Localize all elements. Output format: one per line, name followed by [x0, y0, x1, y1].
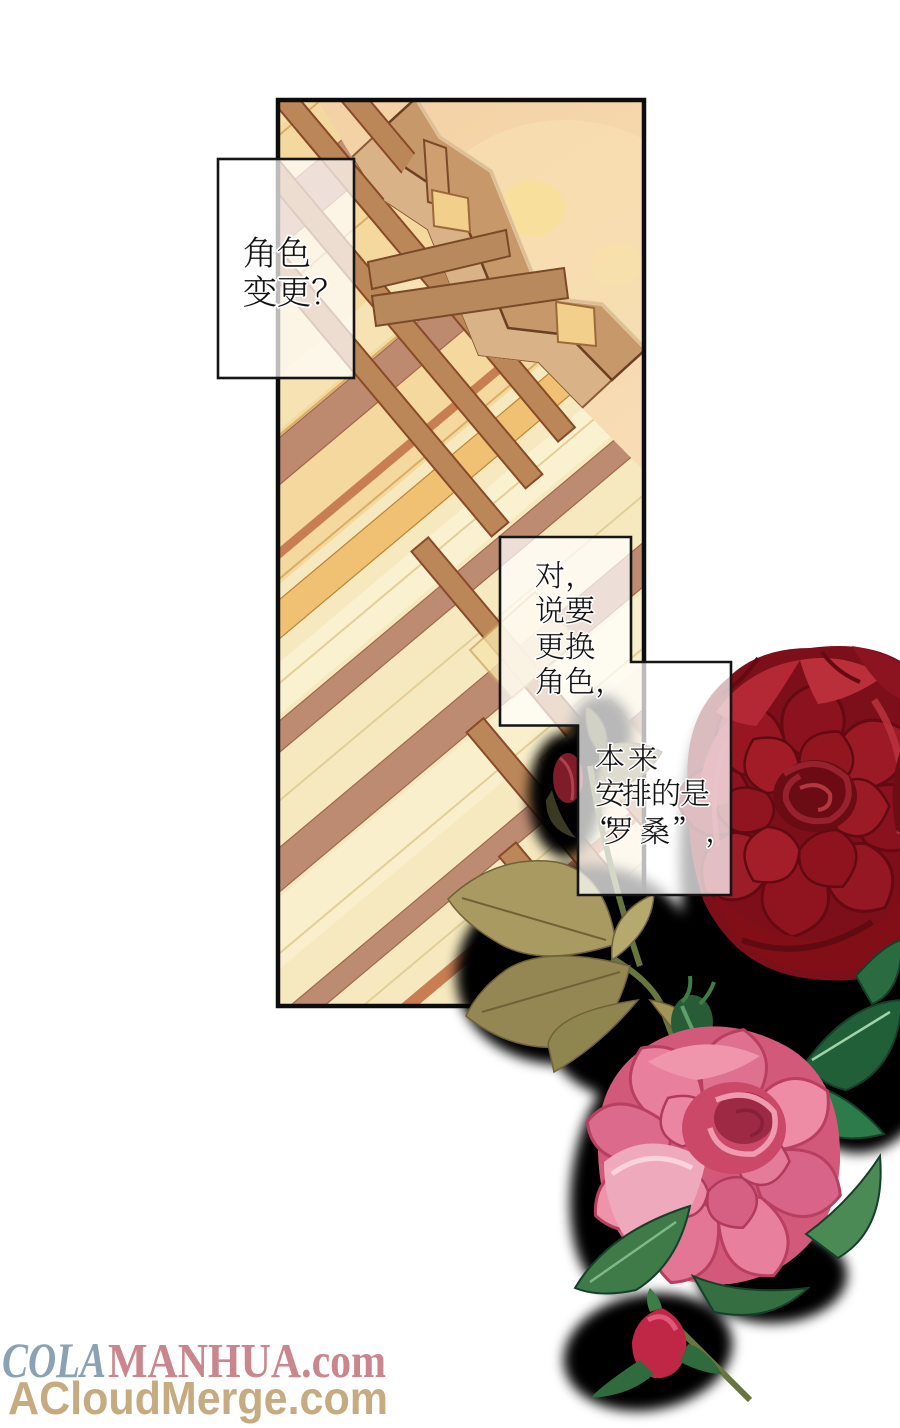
- svg-text:ACloudMerge.com: ACloudMerge.com: [8, 1372, 388, 1424]
